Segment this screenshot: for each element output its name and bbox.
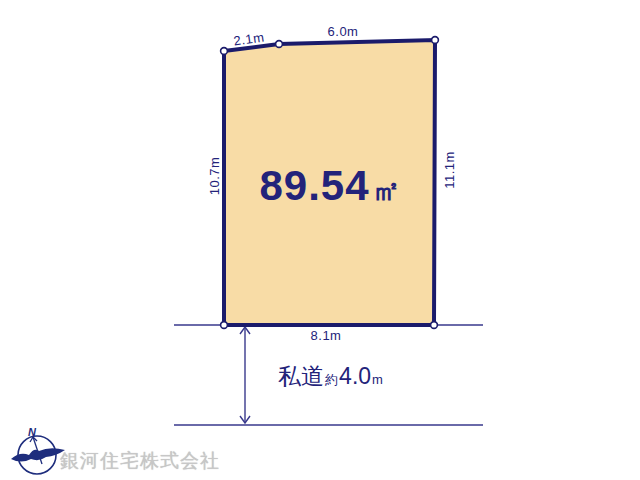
vertex-dot — [221, 48, 228, 55]
company-watermark: 銀河住宅株式会社 — [60, 448, 220, 474]
area-label: 89.54 ㎡ — [259, 162, 400, 210]
land-plot-diagram: 2.1m 6.0m 10.7m 11.1m 8.1m 89.54 ㎡ 私道 約 … — [0, 0, 640, 480]
vertex-dot — [221, 322, 228, 329]
dimension-left: 10.7m — [207, 157, 222, 196]
road-approx: 約 — [325, 371, 338, 389]
diagram-geometry — [0, 0, 640, 480]
private-road-label: 私道 約 4.0 m — [278, 361, 384, 392]
vertex-dot — [432, 37, 439, 44]
road-name: 私道 — [278, 361, 324, 392]
road-width-unit: m — [372, 372, 383, 387]
dimension-right: 11.1m — [442, 151, 457, 189]
road-width-arrow — [240, 327, 250, 423]
road-width-value: 4.0 — [339, 363, 371, 390]
area-unit: ㎡ — [373, 172, 401, 210]
vertex-dot — [431, 322, 438, 329]
vertex-dot — [276, 41, 283, 48]
dimension-bottom: 8.1m — [311, 328, 342, 343]
compass-north-label: N — [28, 426, 36, 438]
dimension-top: 6.0m — [328, 24, 359, 39]
area-value: 89.54 — [259, 162, 369, 210]
